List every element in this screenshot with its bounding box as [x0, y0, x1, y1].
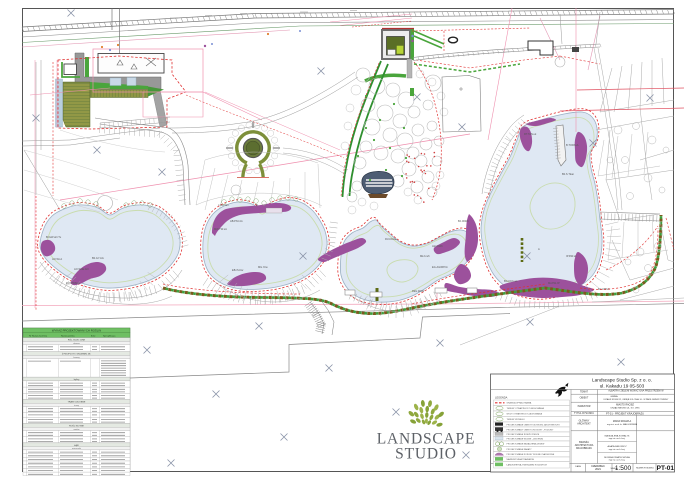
svg-text:LEGENDA: LEGENDA [495, 396, 508, 400]
svg-text:ul. Kakadu 19 05-503: ul. Kakadu 19 05-503 [600, 384, 645, 389]
svg-text:IP.DW.uk: IP.DW.uk [566, 254, 577, 258]
svg-text:ŁĄKA KWIETNA Z MIESZANKI RODZI: ŁĄKA KWIETNA Z MIESZANKI RODZIMYCH [507, 464, 548, 467]
svg-text:RŚL. BUJO.CINE: RŚL. BUJO.CINE [68, 339, 86, 342]
svg-text:mgr inż. arch. kraj.: mgr inż. arch. kraj. [609, 460, 626, 462]
svg-text:BG.DCh.an: BG.DCh.an [504, 279, 518, 283]
svg-text:RU.DGtan: RU.DGtan [385, 237, 398, 241]
svg-text:MAGDALENA KOWALTS: MAGDALENA KOWALTS [605, 434, 630, 437]
svg-text:TRAW OZDOBNE: TRAW OZDOBNE [68, 400, 86, 403]
svg-text:ARCHITEKT: ARCHITEKT [577, 423, 591, 426]
svg-text:mgr inż. arch. kraj.: mgr inż. arch. kraj. [609, 438, 626, 440]
svg-text:AO.Wt.A: AO.Wt.A [52, 257, 62, 261]
svg-text:AB.PN.InG: AB.PN.InG [230, 219, 243, 223]
svg-text:Bb.S.Tkan: Bb.S.Tkan [562, 172, 575, 176]
svg-text:ROŚL.WOTNE: ROŚL.WOTNE [69, 424, 84, 427]
svg-text:TYTUŁ RYSUNKU: TYTUŁ RYSUNKU [574, 412, 594, 415]
svg-text:PROJEKTOWANY OBIEKT DROGOWY -: PROJEKTOWANY OBIEKT DROGOWY - POZIOMY [507, 428, 554, 431]
svg-text:AGATA ZAKOWICZ: AGATA ZAKOWICZ [607, 445, 627, 448]
svg-text:trawy: trawy [74, 404, 79, 407]
svg-text:Specyfikacja: Specyfikacja [103, 335, 116, 337]
svg-text:MARIA SPALWLA: MARIA SPALWLA [613, 420, 632, 423]
svg-text:AO.WrtE.AO: AO.WrtE.AO [74, 267, 89, 271]
svg-text:Bl.GW.aO.Tu: Bl.GW.aO.Tu [46, 235, 62, 239]
svg-text:TERENY OTWARTE/ODT ZACHOWANIA: TERENY OTWARTE/ODT ZACHOWANIA [507, 407, 545, 410]
svg-text:PROJEKTOWANE RABATY: PROJEKTOWANE RABATY [507, 448, 533, 451]
svg-text:EB.rS.Dw: EB.rS.Dw [232, 268, 243, 272]
svg-text:MG.f.bw: MG.f.bw [258, 265, 268, 269]
svg-text:TEMAT: TEMAT [580, 390, 588, 393]
svg-text:PT-01: PT-01 [657, 465, 675, 472]
svg-text:ALBATRA I ZIELENI WOKACYJNA PR: ALBATRA I ZIELENI WOKACYJNA PRZESTRZENI … [608, 389, 664, 392]
svg-text:GMINA: GMINA [610, 395, 618, 398]
svg-text:TERENY WYBIEGU: TERENY WYBIEGU [507, 419, 526, 421]
svg-text:RT.TAN.uk: RT.TAN.uk [524, 132, 537, 136]
svg-text:mgr inż. arch. kraj.: mgr inż. arch. kraj. [609, 449, 626, 451]
svg-text:PROJEKTOWANE ŚCIEŻKI PIESZE: PROJEKTOWANE ŚCIEŻKI PIESZE [507, 433, 540, 436]
svg-text:DZIAŁKI NR EW.12, OBRĘB KOLONI: DZIAŁKI NR EW.12, OBRĘB KOLONIA. UL. W P… [604, 398, 669, 401]
svg-text:Bb.GY.AG: Bb.GY.AG [92, 256, 104, 260]
svg-text:RkG.WAW: RkG.WAW [412, 289, 425, 293]
svg-text:GRANICA OPRACOWANIA: GRANICA OPRACOWANIA [507, 402, 532, 405]
svg-text:INWESTOR: INWESTOR [578, 405, 591, 408]
svg-text:PROJEKTOWANE ROŚLINY WODNE I N: PROJEKTOWANE ROŚLINY WODNE I NADWODNE [507, 453, 555, 456]
svg-text:ŻYWOPŁOTY, SKUMNIKI ZE.: ŻYWOPŁOTY, SKUMNIKI ZE. [62, 353, 92, 356]
svg-text:MAXW.JP: MAXW.JP [548, 281, 560, 285]
svg-text:1:500: 1:500 [615, 465, 632, 472]
svg-text:A: A [538, 247, 540, 251]
svg-text:NUMER RYSUNKU: NUMER RYSUNKU [636, 468, 654, 470]
svg-text:URZĄD MIEJSKI UL. KO. 1985: URZĄD MIEJSKI UL. KO. 1985 [611, 407, 641, 410]
svg-text:PT-01 - PROJEKT KRAJOBRAZU: PT-01 - PROJEKT KRAJOBRAZU [606, 412, 644, 415]
svg-text:AkJ.OWn: AkJ.OWn [432, 244, 444, 248]
svg-text:WYKAZ PROJEKTOWANYCH ROŚLIN: WYKAZ PROJEKTOWANYCH ROŚLIN [52, 328, 101, 333]
svg-text:MkJ.rwh: MkJ.rwh [420, 254, 430, 258]
svg-text:MW.TW.sA: MW.TW.sA [214, 227, 227, 231]
svg-text:B.TOPAuA: B.TOPAuA [566, 143, 579, 147]
svg-text:PROJEKTOWANE NASADZENIA DRZEW: PROJEKTOWANE NASADZENIA DRZEW [507, 443, 545, 446]
svg-text:WODY OTWARTE/ODT ZACHOWANIA: WODY OTWARTE/ODT ZACHOWANIA [507, 413, 543, 416]
svg-text:DATA: DATA [575, 465, 581, 468]
svg-text:2021: 2021 [595, 467, 601, 471]
svg-text:Landscape Studio Sp. z o. o.: Landscape Studio Sp. z o. o. [592, 378, 652, 383]
svg-text:Nr Nazwa łacińska: Nr Nazwa łacińska [29, 334, 48, 337]
svg-text:PROJEKTOWANE WODNE - ZBIORNIKI: PROJEKTOWANE WODNE - ZBIORNIKI [507, 438, 544, 441]
svg-text:EG.AGWPOn: EG.AGWPOn [432, 265, 448, 269]
svg-text:PROJEKTOWANE OBIEKTY/ODTWORZ.: PROJEKTOWANE OBIEKTY/ODTWORZ. ARCHITEKTU… [507, 423, 561, 426]
svg-text:NAWIERZCHNIA TRAWIASTA: NAWIERZCHNIA TRAWIASTA [507, 458, 535, 461]
svg-text:byliny: byliny [74, 379, 80, 381]
svg-text:MIASTO RACIBZ: MIASTO RACIBZ [616, 404, 634, 407]
svg-text:STUDIO: STUDIO [395, 446, 457, 463]
svg-text:BJ.JDWn: BJ.JDWn [458, 219, 469, 223]
svg-text:mgr inż. arch. kr. MAŁGORZATA: mgr inż. arch. kr. MAŁGORZATA [607, 423, 638, 426]
svg-text:OBIEKT: OBIEKT [580, 397, 589, 400]
svg-text:Nazwa polska: Nazwa polska [61, 335, 75, 337]
svg-text:KRAJOBRAZU: KRAJOBRAZU [576, 447, 592, 450]
svg-text:ŁĄKI: ŁĄKI [74, 444, 79, 447]
svg-text:MONIKA KWIATKOWSKA: MONIKA KWIATKOWSKA [604, 456, 630, 459]
